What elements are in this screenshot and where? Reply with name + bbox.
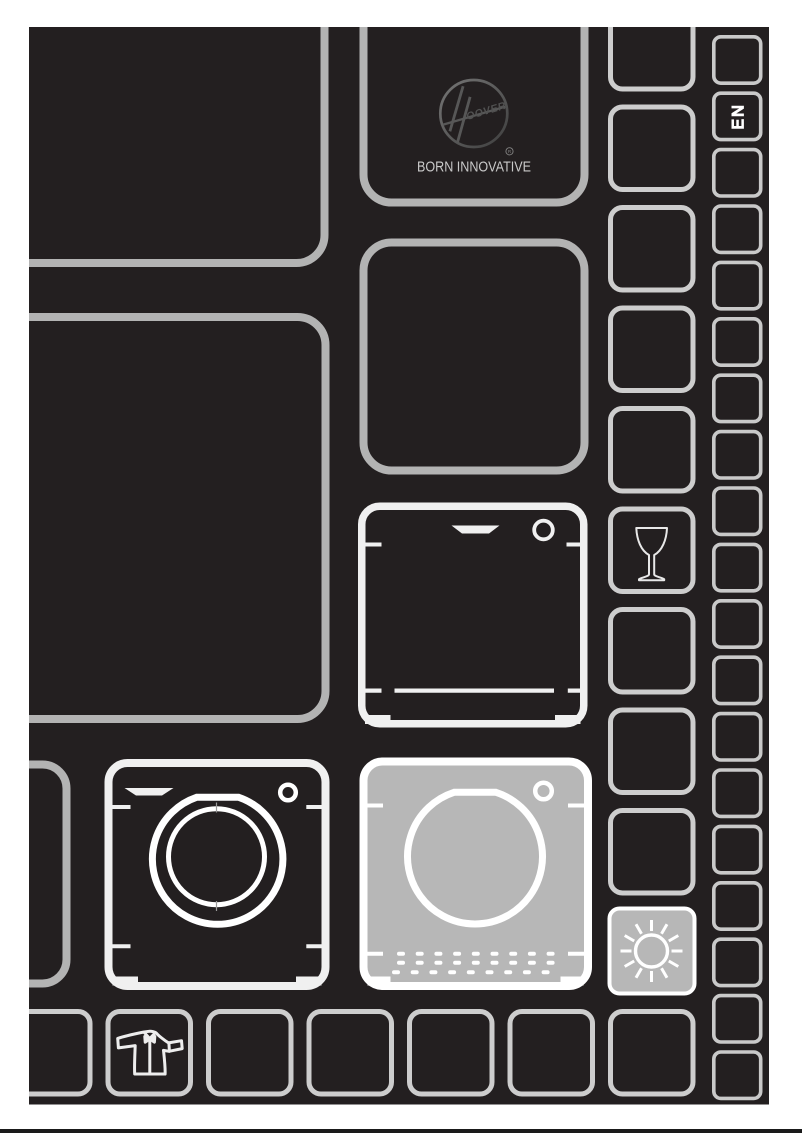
svg-text:BORN INNOVATIVE: BORN INNOVATIVE <box>417 159 531 176</box>
